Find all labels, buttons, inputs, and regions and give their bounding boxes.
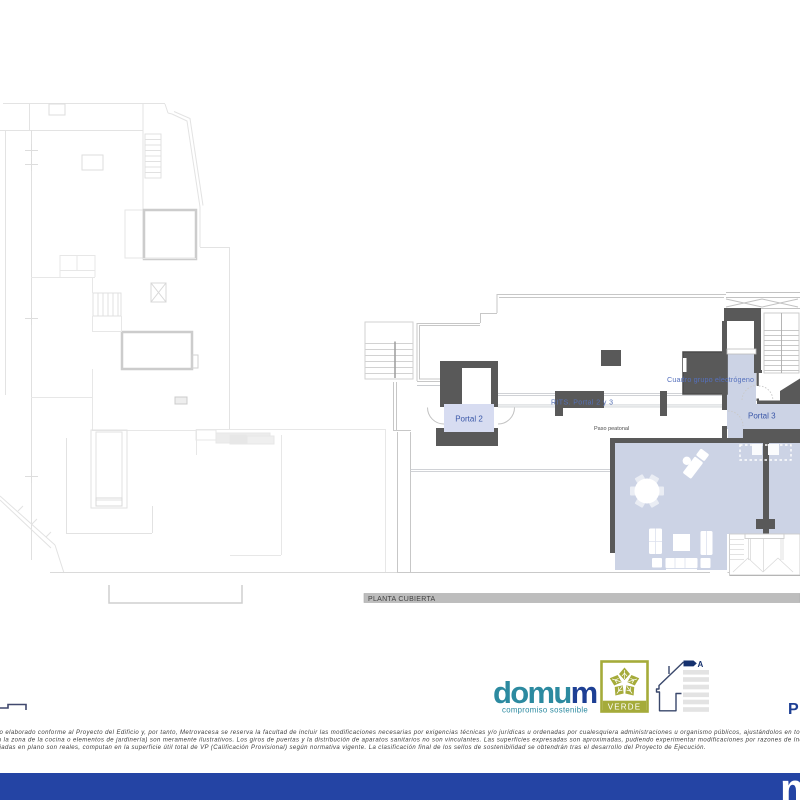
svg-text:Cuadro grupo electrógeno: Cuadro grupo electrógeno — [667, 375, 754, 384]
svg-text:RITS. Portal 2 y 3: RITS. Portal 2 y 3 — [551, 400, 613, 407]
svg-text:ido elaborado conforme al Proy: ido elaborado conforme al Proyecto del E… — [0, 730, 800, 736]
svg-text:compromiso sostenible: compromiso sostenible — [502, 706, 588, 715]
svg-text:lejadas en plano son reales, c: lejadas en plano son reales, computan en… — [0, 745, 706, 751]
svg-text:en la zona de la cocina o elem: en la zona de la cocina o elementos de j… — [0, 738, 800, 744]
svg-text:PLANTA CUBIERTA: PLANTA CUBIERTA — [368, 596, 436, 603]
svg-text:m: m — [780, 765, 800, 800]
svg-text:VERDE: VERDE — [608, 702, 642, 711]
svg-text:Portal 3: Portal 3 — [748, 412, 776, 421]
svg-text:P: P — [788, 701, 799, 718]
svg-text:A: A — [698, 660, 704, 669]
svg-text:Paso peatonal: Paso peatonal — [594, 426, 629, 432]
svg-text:Portal 2: Portal 2 — [455, 415, 483, 424]
